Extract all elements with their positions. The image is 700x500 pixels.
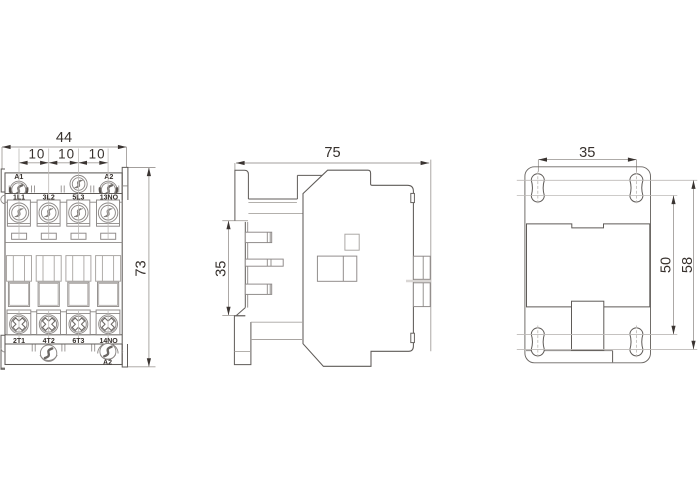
svg-text:35: 35 bbox=[213, 261, 229, 277]
svg-text:75: 75 bbox=[324, 145, 340, 161]
svg-text:5L3: 5L3 bbox=[72, 194, 84, 201]
svg-text:73: 73 bbox=[134, 260, 150, 276]
svg-text:50: 50 bbox=[658, 257, 674, 273]
svg-text:4T2: 4T2 bbox=[43, 338, 55, 345]
svg-text:6T3: 6T3 bbox=[72, 338, 84, 345]
svg-text:13NO: 13NO bbox=[100, 194, 119, 201]
svg-text:1L1: 1L1 bbox=[13, 194, 25, 201]
svg-text:44: 44 bbox=[56, 130, 72, 146]
svg-text:10: 10 bbox=[28, 147, 45, 162]
svg-text:2T1: 2T1 bbox=[13, 338, 25, 345]
svg-text:3L2: 3L2 bbox=[43, 194, 55, 201]
svg-text:A2: A2 bbox=[103, 359, 112, 366]
svg-text:A2: A2 bbox=[104, 172, 113, 181]
svg-text:10: 10 bbox=[58, 147, 75, 162]
svg-text:35: 35 bbox=[579, 145, 595, 161]
svg-text:10: 10 bbox=[89, 147, 106, 162]
svg-text:58: 58 bbox=[680, 257, 696, 273]
